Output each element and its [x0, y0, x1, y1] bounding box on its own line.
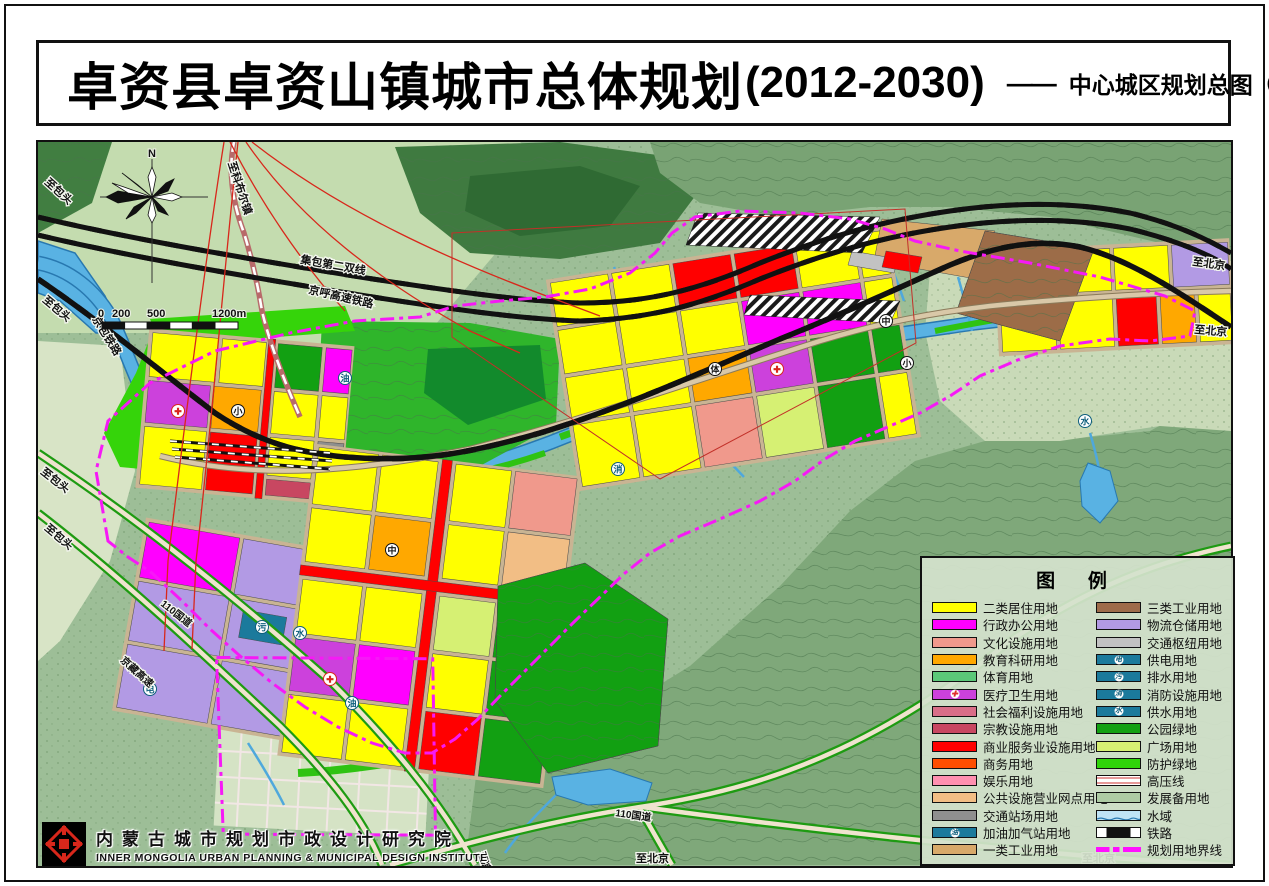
- svg-text:水: 水: [1080, 416, 1090, 427]
- legend-item: 一类工业用地: [932, 841, 1096, 858]
- svg-text:消: 消: [613, 464, 622, 475]
- legend-item: 商务用地: [932, 755, 1096, 772]
- legend-item: 体育用地: [932, 668, 1096, 685]
- legend-item: 社会福利设施用地: [932, 703, 1096, 720]
- legend-item: 娱乐用地: [932, 772, 1096, 789]
- legend-title: 图 例: [932, 566, 1225, 593]
- svg-text:水: 水: [295, 628, 305, 639]
- sewage-icon: 污: [256, 621, 269, 634]
- svg-text:小: 小: [901, 358, 911, 369]
- legend-item: 水供水用地: [1096, 703, 1225, 720]
- water-supply-icon: 水: [294, 627, 307, 640]
- title-years: (2012-2030): [745, 58, 985, 108]
- legend-item: 商业服务业设施用地: [932, 737, 1096, 754]
- legend-item: 二类居住用地: [932, 599, 1096, 616]
- compass-north-label: N: [148, 148, 156, 160]
- legend: 图 例 二类居住用地 行政办公用地 文化设施用地 教育科研用地 体育用地 ✚医疗…: [920, 556, 1235, 866]
- legend-item: 铁路: [1096, 824, 1225, 841]
- legend-item: 行政办公用地: [932, 616, 1096, 633]
- legend-item: 高压线: [1096, 772, 1225, 789]
- hospital-icon: ✚: [771, 363, 784, 376]
- svg-text:200: 200: [112, 308, 130, 320]
- primary-school-icon: 小: [901, 357, 914, 370]
- svg-text:油: 油: [340, 373, 349, 384]
- svg-text:中: 中: [387, 545, 396, 556]
- title-sub-year: （2030年）: [1255, 70, 1269, 97]
- svg-text:油: 油: [347, 698, 356, 709]
- gas-station-icon: 油: [346, 697, 359, 710]
- svg-text:中: 中: [881, 316, 890, 327]
- legend-item: 物流仓储用地: [1096, 616, 1225, 633]
- hospital-icon: ✚: [324, 673, 337, 686]
- legend-item: 规划用地界线: [1096, 841, 1225, 858]
- legend-left-column: 二类居住用地 行政办公用地 文化设施用地 教育科研用地 体育用地 ✚医疗卫生用地…: [932, 599, 1096, 858]
- legend-right-column: 三类工业用地 物流仓储用地 交通枢纽用地 电供电用地 污排水用地 消消防设施用地…: [1096, 599, 1225, 858]
- svg-text:✚: ✚: [773, 365, 781, 375]
- map-area: 油 油 污 电 水 水 消 ✚ ✚ ✚ 小 小 中 中 体 至包头 至包头 至包…: [36, 140, 1233, 868]
- middle-school-icon: 中: [386, 544, 399, 557]
- svg-text:体: 体: [710, 364, 720, 375]
- title-block: 卓资县卓资山镇城市总体规划 (2012-2030) —— 中心城区规划总图 （2…: [36, 40, 1231, 126]
- institute-logo-icon: [42, 822, 86, 866]
- institute-name-cn: 内蒙古城市规划市政设计研究院: [96, 825, 488, 850]
- legend-item: 发展备用地: [1096, 789, 1225, 806]
- svg-text:小: 小: [232, 406, 242, 417]
- hospital-icon: ✚: [172, 405, 185, 418]
- legend-item: 公共设施营业网点用地: [932, 789, 1096, 806]
- legend-item: 防护绿地: [1096, 755, 1225, 772]
- middle-school-icon: 中: [880, 315, 893, 328]
- gas-station-icon: 油: [339, 372, 352, 385]
- water-supply-icon: 水: [1079, 415, 1092, 428]
- legend-item: ✚医疗卫生用地: [932, 685, 1096, 702]
- legend-item: 污排水用地: [1096, 668, 1225, 685]
- svg-text:1200m: 1200m: [212, 308, 246, 320]
- svg-text:0: 0: [98, 308, 104, 320]
- svg-text:✚: ✚: [326, 675, 334, 685]
- sports-icon: 体: [709, 363, 722, 376]
- legend-item: 宗教设施用地: [932, 720, 1096, 737]
- legend-item: 三类工业用地: [1096, 599, 1225, 616]
- primary-school-icon: 小: [232, 405, 245, 418]
- page-title: 卓资县卓资山镇城市总体规划: [67, 46, 743, 120]
- title-separator: ——: [1007, 68, 1055, 99]
- legend-item: 消消防设施用地: [1096, 685, 1225, 702]
- legend-item: 电供电用地: [1096, 651, 1225, 668]
- institute-name-en: INNER MONGOLIA URBAN PLANNING & MUNICIPA…: [96, 852, 488, 864]
- legend-item: 广场用地: [1096, 737, 1225, 754]
- plan-sheet: 卓资县卓资山镇城市总体规划 (2012-2030) —— 中心城区规划总图 （2…: [0, 0, 1269, 886]
- road-label: 至北京: [636, 851, 669, 865]
- legend-item: 教育科研用地: [932, 651, 1096, 668]
- title-subtitle: 中心城区规划总图: [1069, 66, 1253, 100]
- legend-item: 交通枢纽用地: [1096, 634, 1225, 651]
- legend-item: 油加油加气站用地: [932, 824, 1096, 841]
- legend-item: 文化设施用地: [932, 634, 1096, 651]
- institute-block: 内蒙古城市规划市政设计研究院 INNER MONGOLIA URBAN PLAN…: [42, 822, 488, 866]
- svg-text:污: 污: [257, 622, 266, 633]
- legend-item: 水域: [1096, 807, 1225, 824]
- fire-station-icon: 消: [612, 463, 625, 476]
- svg-text:500: 500: [147, 308, 165, 320]
- legend-item: 公园绿地: [1096, 720, 1225, 737]
- svg-text:✚: ✚: [174, 407, 182, 417]
- legend-item: 交通站场用地: [932, 807, 1096, 824]
